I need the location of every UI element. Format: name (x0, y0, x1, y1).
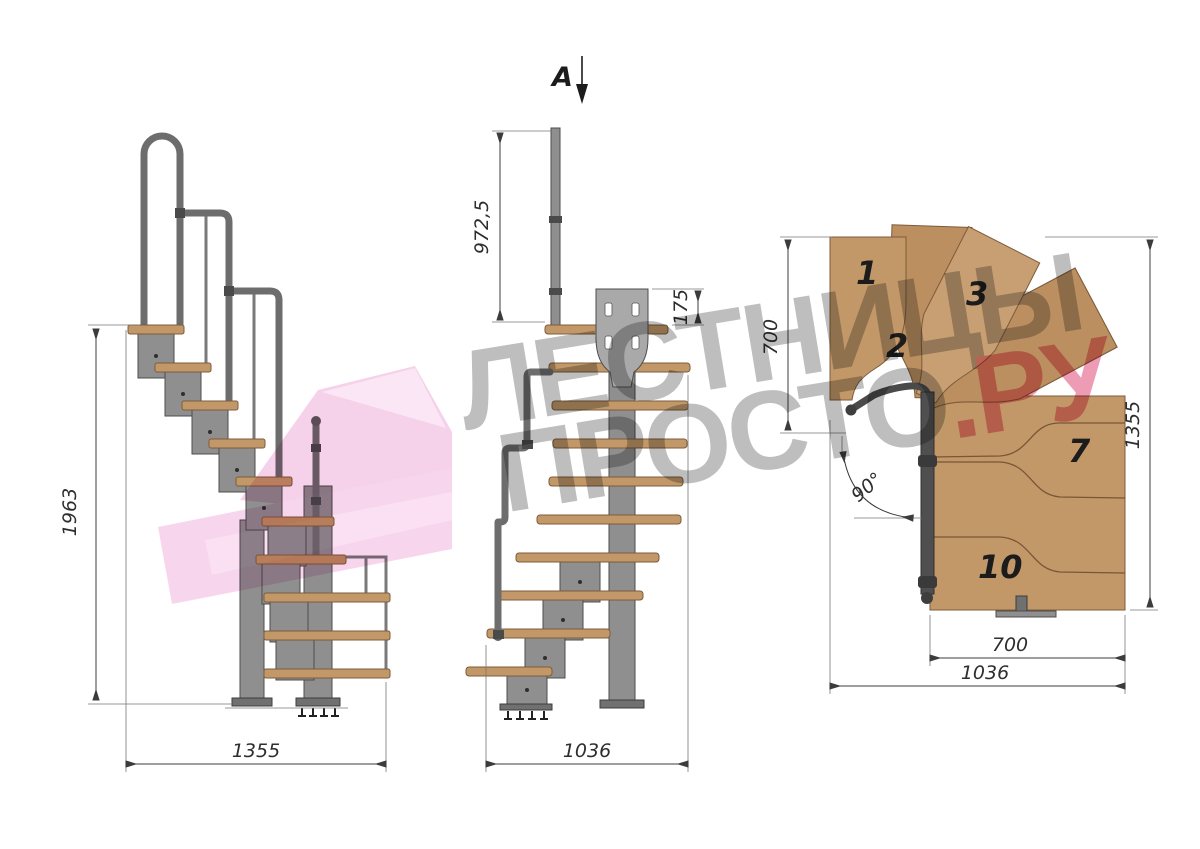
dim-front-width: 1036 (563, 740, 611, 762)
dim-front-post-height: 972,5 (471, 200, 493, 254)
section-arrow-icon (576, 84, 588, 104)
section-marker: A (550, 56, 588, 104)
dim-side-height: 1963 (59, 488, 81, 536)
dim-plan-tread-length: 700 (992, 634, 1028, 656)
front-handrail-post (551, 128, 560, 332)
technical-drawing-page: 1963 1355 (0, 0, 1200, 849)
tread-number-10: 10 (978, 548, 1023, 586)
section-letter: A (550, 62, 573, 93)
dim-plan-total-length: 1355 (1122, 401, 1144, 449)
dim-plan-total-width: 1036 (961, 662, 1009, 684)
staircase-drawing: 1963 1355 (0, 0, 1200, 849)
dim-side-length: 1355 (232, 740, 280, 762)
